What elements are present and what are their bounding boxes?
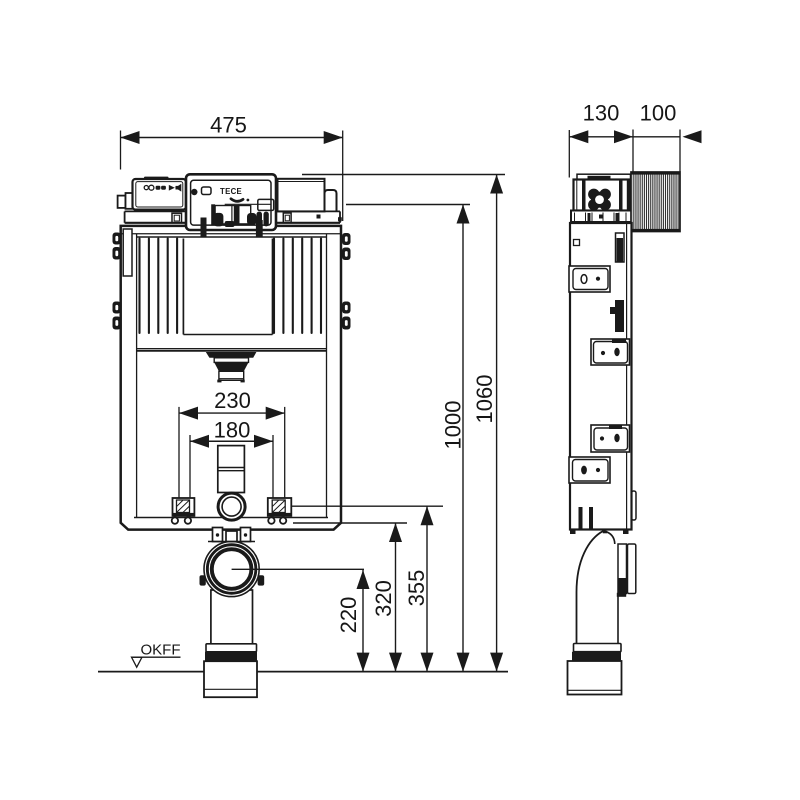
svg-text:475: 475	[210, 113, 247, 138]
svg-text:TECE: TECE	[220, 187, 242, 196]
svg-text:100: 100	[640, 101, 677, 126]
svg-text:1000: 1000	[441, 401, 466, 450]
svg-text:230: 230	[214, 388, 251, 413]
svg-text:320: 320	[371, 580, 396, 617]
svg-text:220: 220	[336, 597, 361, 634]
svg-text:180: 180	[214, 418, 251, 443]
svg-text:OKFF: OKFF	[141, 642, 181, 659]
svg-text:1060: 1060	[472, 375, 497, 424]
svg-text:130: 130	[583, 101, 620, 126]
svg-text:355: 355	[404, 570, 429, 607]
